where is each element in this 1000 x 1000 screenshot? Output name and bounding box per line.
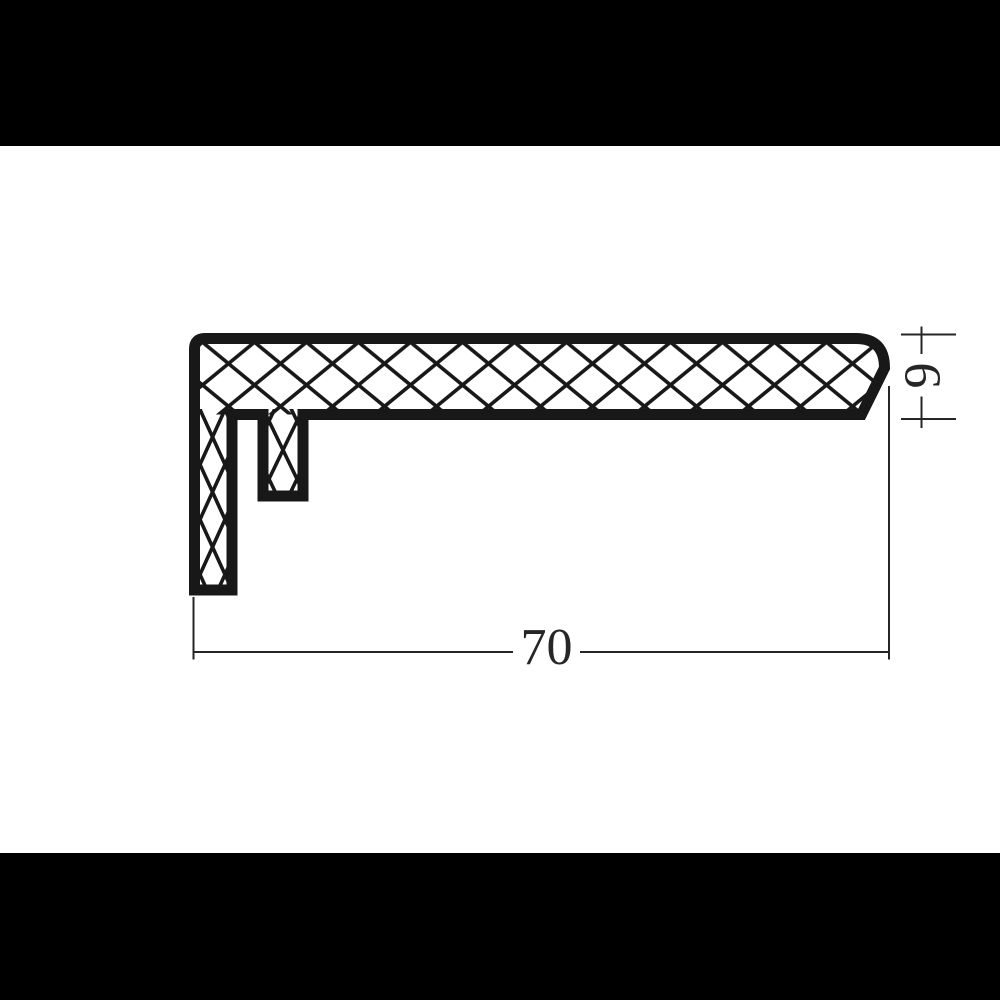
- drawing-canvas: [0, 146, 1000, 853]
- technical-drawing: 70 9: [0, 0, 1000, 1000]
- leg-hatch: [195, 409, 233, 590]
- dimension-9-label: 9: [895, 363, 952, 389]
- drawing-page: 70 9: [0, 0, 1000, 1000]
- flange-hatch: [195, 339, 885, 415]
- rib-hatch: [263, 409, 303, 496]
- dimension-70-label: 70: [521, 619, 573, 676]
